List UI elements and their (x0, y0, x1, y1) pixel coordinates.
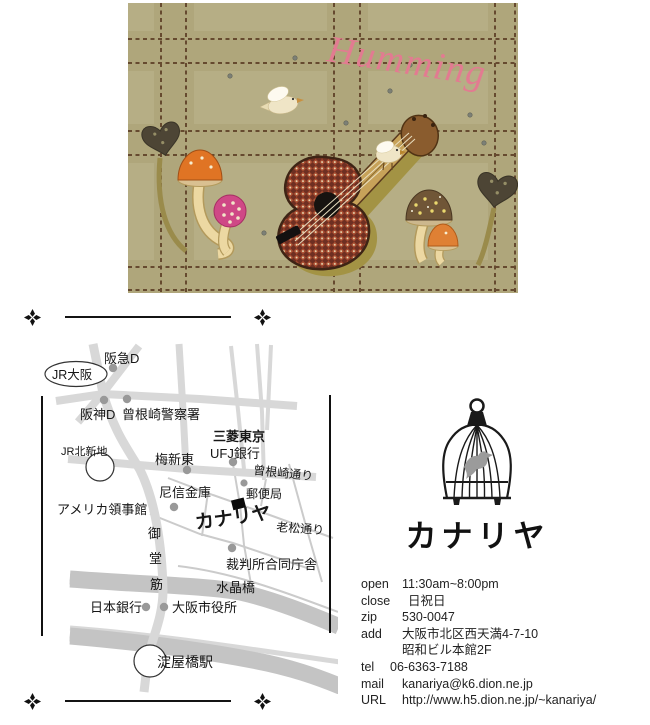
cage-foot-right (494, 499, 501, 505)
info-value-tel: 06-6363-7188 (390, 660, 468, 674)
info-row-close: close日祝日 (361, 593, 596, 610)
info-value-zip: 530-0047 (402, 610, 455, 624)
info-value-mail: kanariya@k6.dion.ne.jp (402, 677, 533, 691)
info-label: open (361, 576, 402, 593)
fabric-art-image: Humming (128, 3, 518, 293)
map-label-umeshin: 梅新東 (155, 452, 194, 467)
birdcage-illustration (433, 395, 521, 511)
info-label: zip (361, 609, 402, 626)
info-label: tel (361, 659, 390, 676)
map-label-oimatsu-dori: 老松通り (276, 520, 325, 537)
access-map: 阪急D JR大阪 阪神D 曾根崎警察署 三菱東京 UFJ銀行 JR北新地 梅新東… (28, 338, 338, 694)
divider-line-bottom (65, 700, 231, 702)
map-label-city-hall: 大阪市役所 (172, 600, 237, 615)
scanned-shop-card: Humming (0, 0, 650, 725)
info-row-zip: zip530-0047 (361, 609, 596, 626)
shop-logo-text: カナリヤ (385, 511, 570, 556)
map-label-court: 裁判所合同庁舎 (226, 557, 317, 572)
info-row-open: open11:30am~8:00pm (361, 576, 596, 593)
map-rivers (70, 576, 338, 690)
info-row-address-2: 昭和ビル本館2F (361, 642, 596, 659)
info-row-tel: tel06-6363-7188 (361, 659, 596, 676)
map-label-hanshin: 阪神D (80, 407, 115, 422)
divider-line-top (65, 316, 231, 318)
map-label-jr-osaka: JR大阪 (52, 368, 93, 382)
map-label-suisho-bridge: 水晶橋 (216, 580, 255, 595)
cage-foot-left (453, 499, 460, 505)
ornament-cross-bottom-left (23, 692, 42, 711)
ornament-cross-top-left (23, 308, 42, 327)
map-label-sonezaki-dori: 曾根崎通り (253, 463, 314, 483)
map-label-bank-of-japan: 日本銀行 (90, 600, 142, 615)
map-label-amashin: 尼信金庫 (159, 485, 211, 500)
map-label-mitsubishi-2: UFJ銀行 (210, 446, 260, 461)
info-value-close-days: 日祝日 (402, 594, 446, 608)
info-label: URL (361, 692, 402, 709)
map-label-mido-2: 堂 (149, 551, 162, 566)
map-label-mitsubishi-1: 三菱東京 (213, 429, 265, 444)
ornament-cross-bottom-right (253, 692, 272, 711)
info-label: close (361, 593, 402, 610)
contact-info: open11:30am~8:00pm close日祝日 zip530-0047 … (361, 576, 596, 709)
map-label-us-consulate: アメリカ領事館 (57, 502, 147, 517)
map-label-mido-1: 御 (148, 526, 161, 541)
info-value-address: 大阪市北区西天満4-7-10 (402, 627, 538, 641)
info-value-open-hours: 11:30am~8:00pm (402, 577, 499, 591)
info-row-address: add大阪市北区西天満4-7-10 (361, 626, 596, 643)
info-row-mail: mailkanariya@k6.dion.ne.jp (361, 676, 596, 693)
info-label: mail (361, 676, 402, 693)
map-label-mido-3: 筋 (150, 577, 163, 592)
map-label-police: 曾根崎警察署 (122, 407, 200, 422)
info-row-url: URLhttp://www.h5.dion.ne.jp/~kanariya/ (361, 692, 596, 709)
cage-ring (471, 400, 484, 413)
info-label: add (361, 626, 402, 643)
info-value-address-2: 昭和ビル本館2F (402, 643, 492, 657)
map-label-yodoyabashi: 淀屋橋駅 (157, 654, 213, 670)
ornament-cross-top-right (253, 308, 272, 327)
map-label-post-office: 郵便局 (246, 487, 282, 501)
map-label-jr-kitashinchi: JR北新地 (61, 444, 107, 458)
info-value-url: http://www.h5.dion.ne.jp/~kanariya/ (402, 693, 596, 707)
map-label-hankyu: 阪急D (104, 351, 139, 366)
